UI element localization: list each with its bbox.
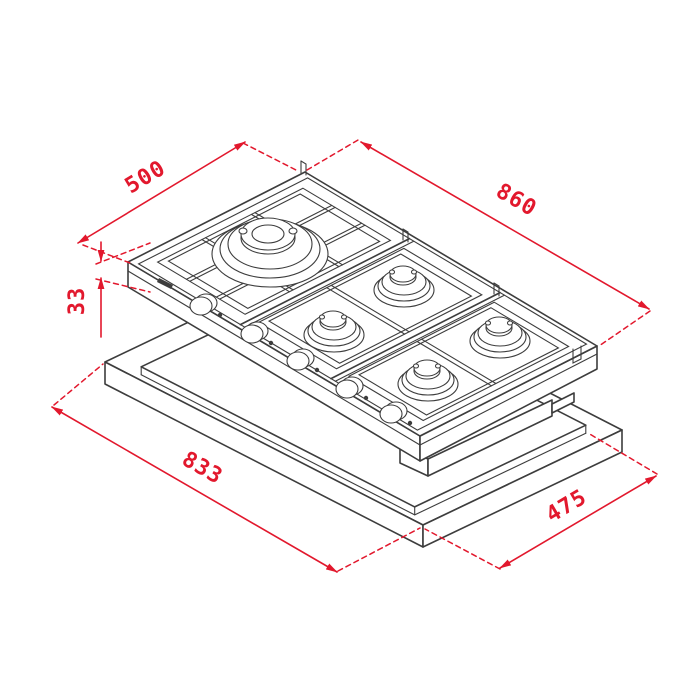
gas-hob-installation-diagram: 500 860 33 833 475 xyxy=(0,0,700,700)
technical-drawing-page: 500 860 33 833 475 xyxy=(0,0,700,700)
dim-label-cutout-width: 475 xyxy=(542,485,592,528)
dim-label-hob-depth: 500 xyxy=(121,156,171,199)
dim-label-hob-width: 860 xyxy=(492,179,542,222)
dim-label-hob-height: 33 xyxy=(65,287,90,316)
